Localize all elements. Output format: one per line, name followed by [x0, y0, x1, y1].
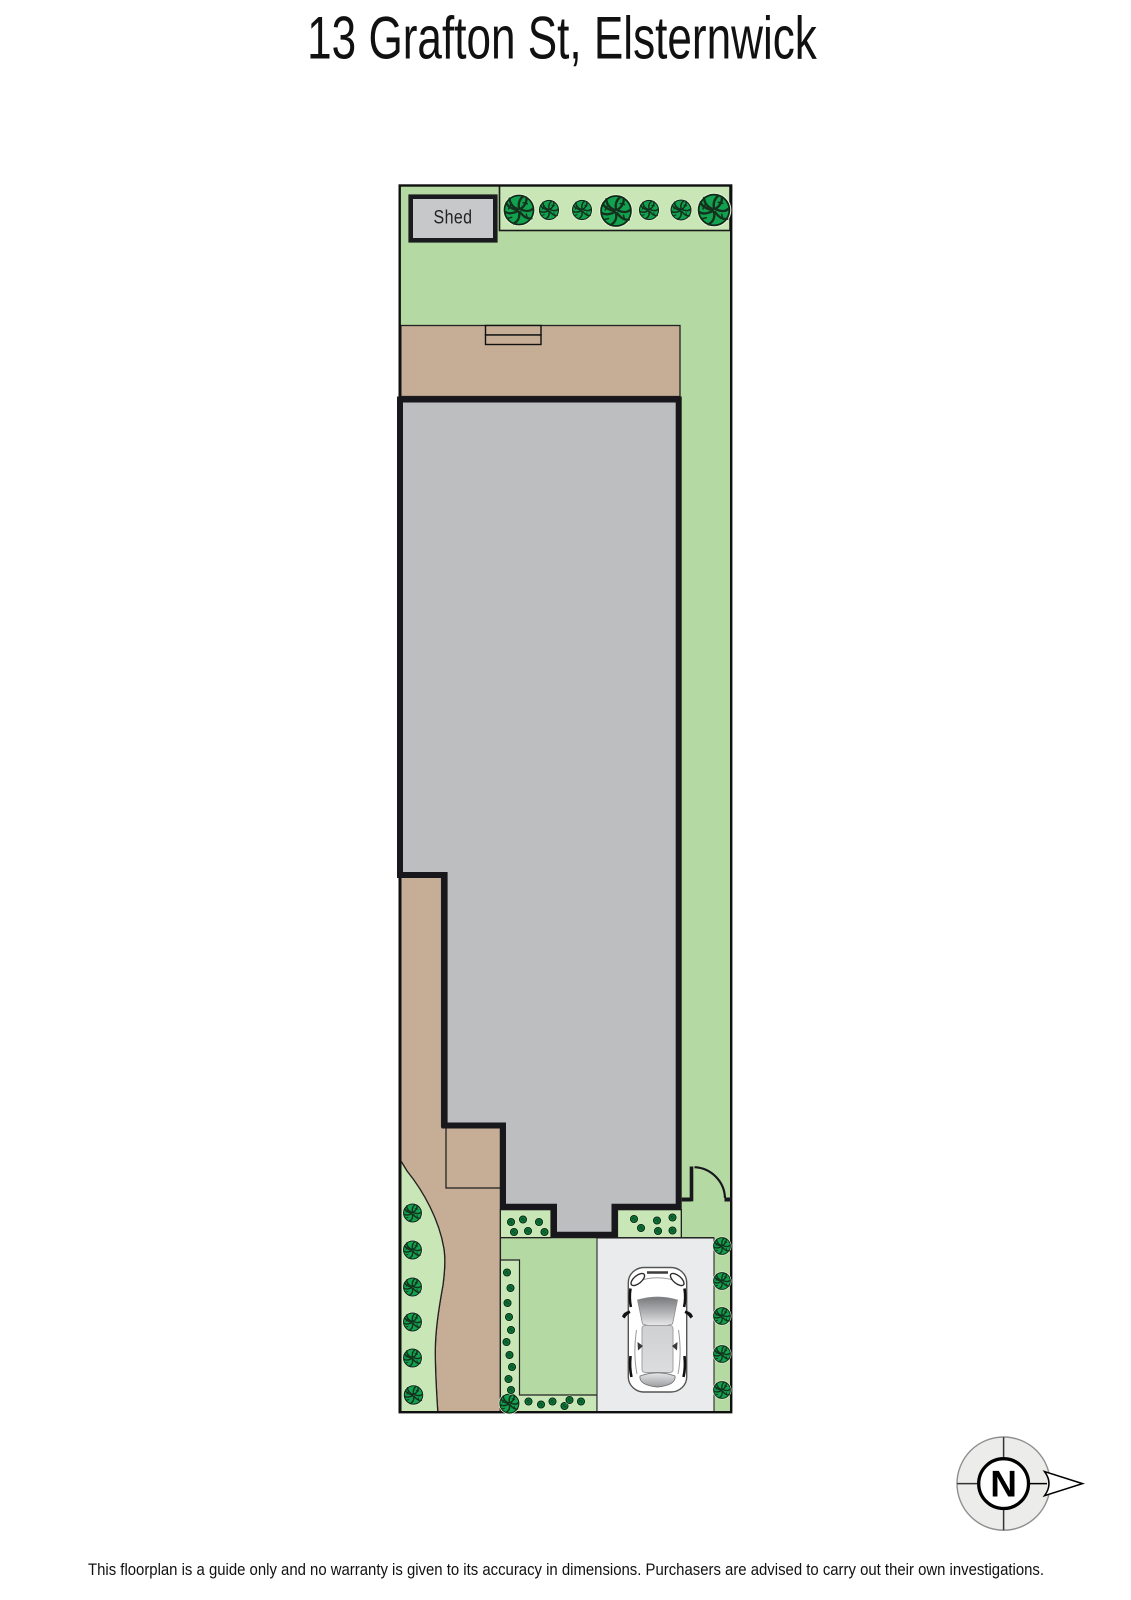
svg-text:This floorplan is a guide only: This floorplan is a guide only and no wa…	[88, 1560, 1044, 1579]
svg-text:N: N	[990, 1464, 1017, 1505]
svg-text:13 Grafton St, Elsternwick: 13 Grafton St, Elsternwick	[307, 5, 817, 72]
svg-text:Shed: Shed	[434, 206, 473, 228]
